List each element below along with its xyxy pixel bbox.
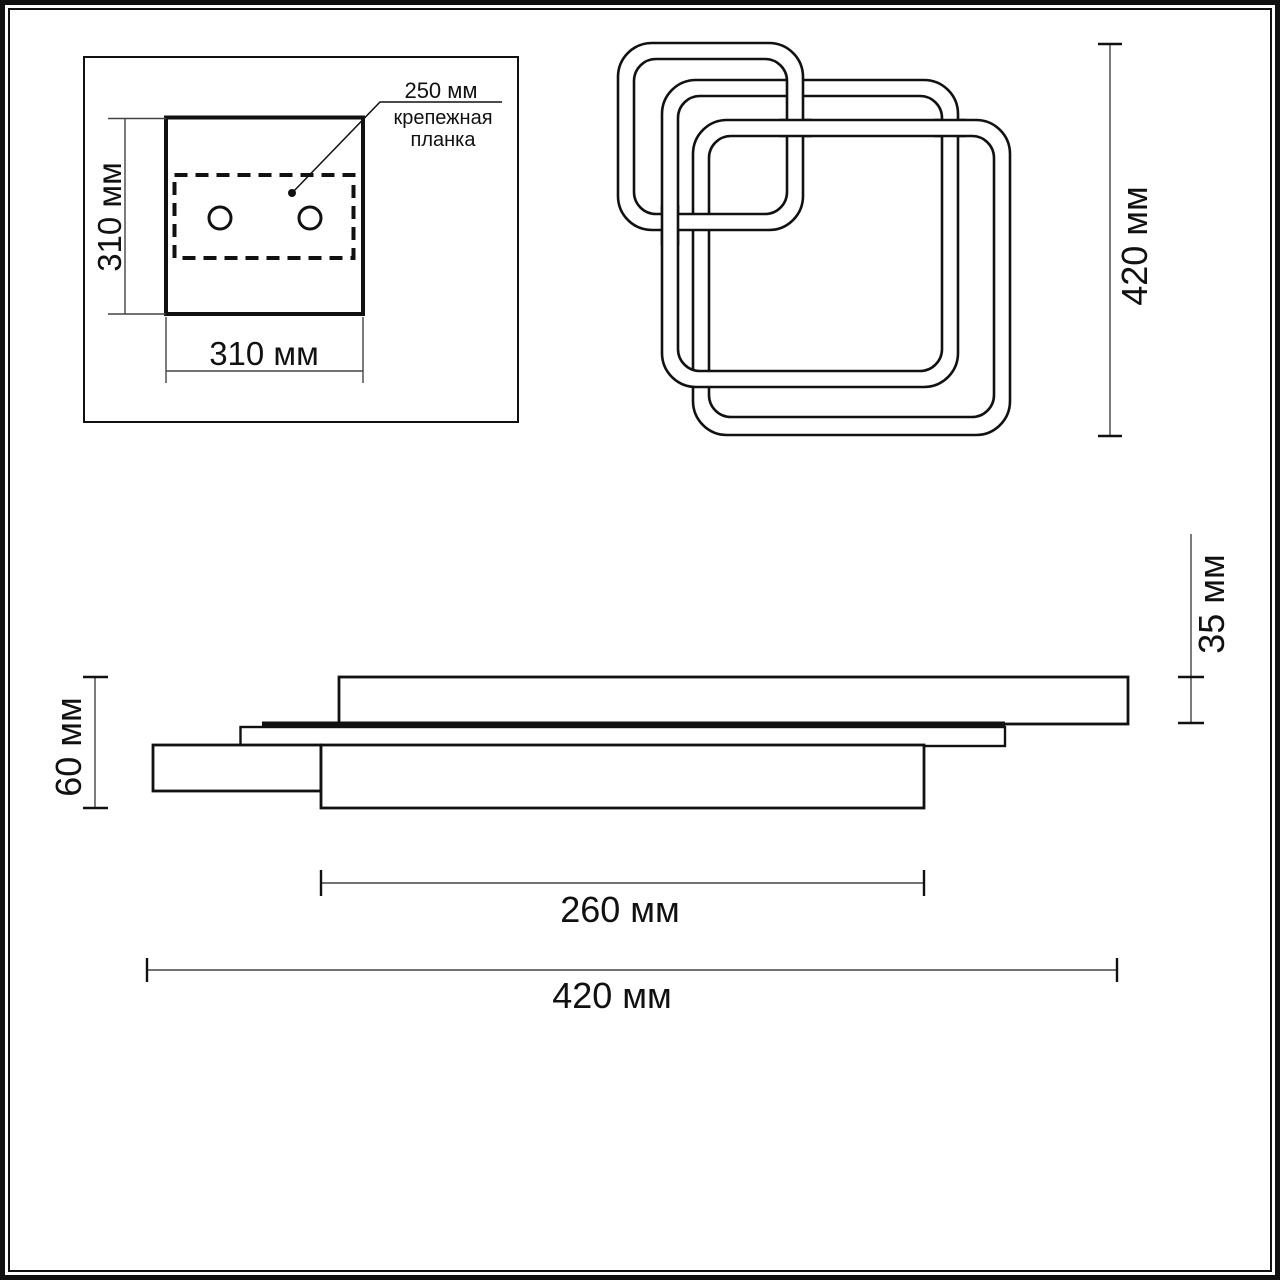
plate-square bbox=[166, 118, 363, 315]
bracket-leader-dot bbox=[288, 189, 296, 197]
side-thickness-label: 60 мм bbox=[48, 697, 90, 797]
lamp-technical-drawing: 250 мм крепежная планка 310 мм 310 мм 42… bbox=[0, 0, 1280, 1280]
bracket-name-label: крепежная планка bbox=[393, 107, 492, 151]
led-strip-line bbox=[262, 722, 1005, 729]
left-end-cap bbox=[153, 745, 321, 791]
plate-width-label: 310 мм bbox=[209, 335, 319, 373]
top-bar-thickness-label: 35 мм bbox=[1191, 554, 1233, 654]
drawing-svg bbox=[0, 0, 1280, 1280]
overall-width-label: 420 мм bbox=[552, 975, 672, 1017]
top-bar bbox=[339, 677, 1128, 724]
bracket-size-label: 250 мм bbox=[404, 78, 477, 104]
bottom-bar bbox=[321, 745, 924, 808]
middle-bar bbox=[241, 727, 1006, 746]
front-height-label: 420 мм bbox=[1114, 186, 1156, 306]
inner-width-label: 260 мм bbox=[560, 889, 680, 931]
bracket-name-line1: крепежная bbox=[393, 107, 492, 129]
plate-height-label: 310 мм bbox=[91, 162, 129, 272]
front-view bbox=[618, 43, 1122, 436]
bracket-name-line2: планка bbox=[393, 129, 492, 151]
